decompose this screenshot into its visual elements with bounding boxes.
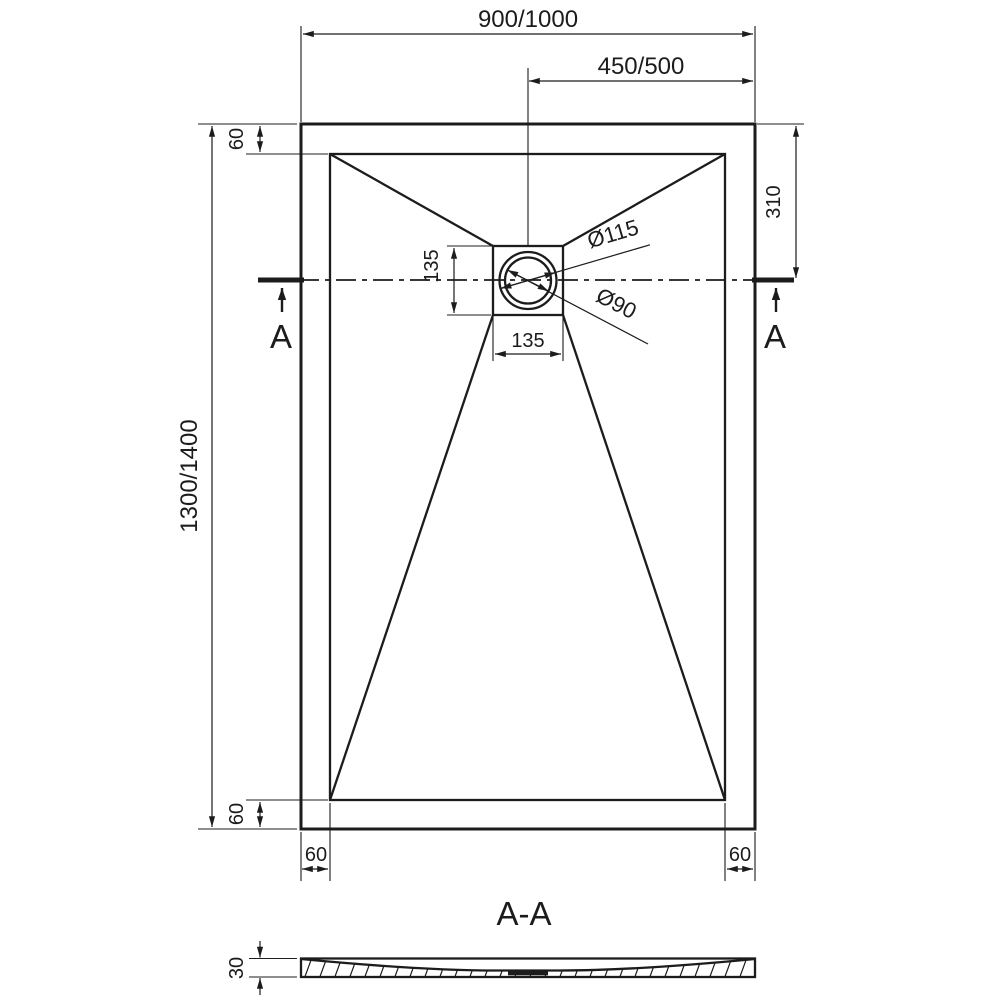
dim-rim-right: 60 [725, 803, 755, 881]
dim-rim-top: 60 [226, 126, 328, 154]
drain-slope-diagonal-bottom-right [563, 315, 725, 800]
drain-slope-diagonal-top-left [330, 154, 493, 246]
plan-view: A A 900/1000 450/500 1300/1400 [176, 6, 804, 881]
dim-center-to-right: 450/500 [529, 53, 753, 81]
section-floor-curve [301, 959, 755, 971]
dim-rim-bottom: 60 [226, 800, 328, 827]
drawing-canvas: A A 900/1000 450/500 1300/1400 [0, 0, 1000, 1000]
dim-drain-outer-dia-label: Ø115 [584, 214, 641, 253]
cut-label-right: A [764, 318, 786, 355]
dim-center-to-right-label: 450/500 [598, 53, 685, 80]
dim-thickness-label: 30 [226, 957, 248, 979]
dim-drain-offset-top-label: 310 [763, 185, 785, 218]
dim-rim-bottom-label: 60 [226, 803, 248, 825]
dim-drain-offset-top: 310 [757, 124, 804, 278]
cut-label-left: A [270, 318, 292, 355]
dim-drain-box-width-label: 135 [511, 330, 544, 352]
cut-marker-right: A [764, 288, 786, 355]
dim-thickness: 30 [226, 941, 297, 995]
drain-slope-diagonal-bottom-left [330, 315, 493, 800]
section-view: A-A 30 [226, 895, 764, 995]
dim-rim-top-label: 60 [226, 128, 248, 150]
section-title: A-A [496, 895, 551, 932]
cut-marker-left: A [270, 288, 292, 355]
dim-rim-left-label: 60 [305, 844, 327, 866]
dim-rim-right-label: 60 [729, 844, 751, 866]
dim-drain-box-width: 135 [493, 317, 563, 361]
dim-overall-width-label: 900/1000 [478, 6, 578, 33]
dim-overall-length-label: 1300/1400 [176, 419, 203, 532]
dim-drain-inner-dia-label: Ø90 [592, 283, 640, 324]
dim-rim-left: 60 [301, 803, 330, 881]
dim-overall-length: 1300/1400 [176, 124, 297, 829]
shower-tray-technical-drawing: A A 900/1000 450/500 1300/1400 [0, 0, 1000, 1000]
section-drain-fitting [508, 972, 548, 976]
dim-drain-box-height-label: 135 [421, 249, 443, 282]
